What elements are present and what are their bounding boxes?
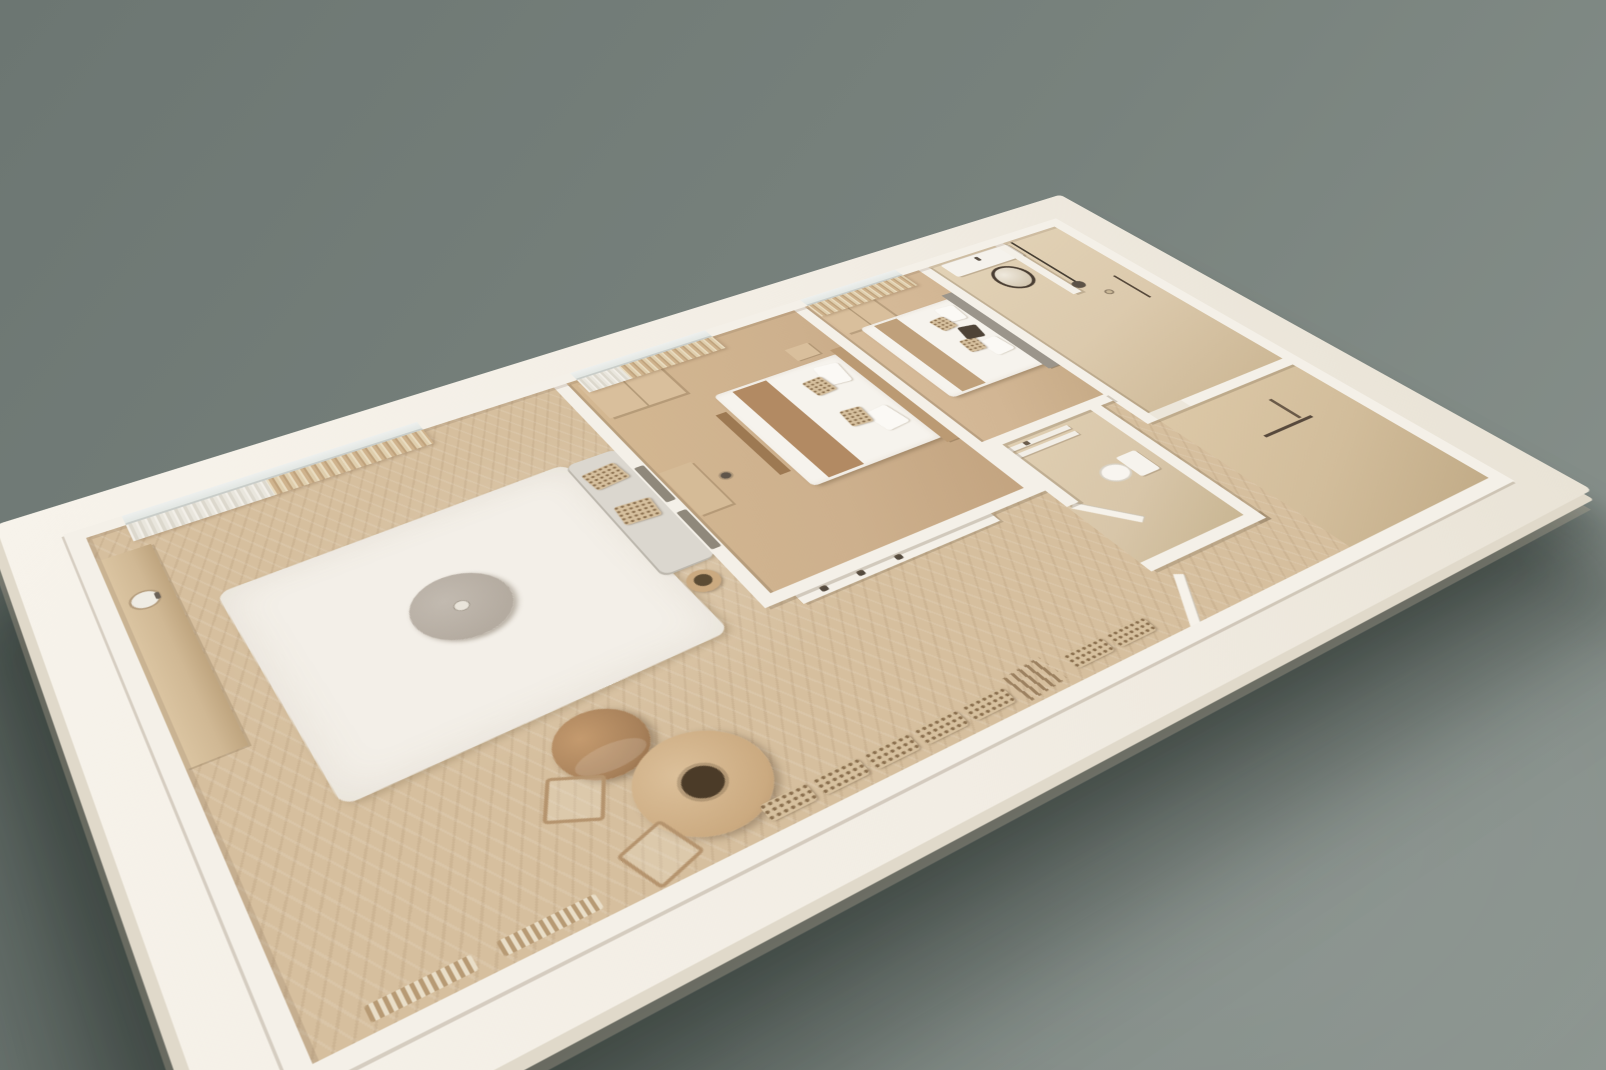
isometric-projection-wrapper [0, 195, 1592, 1070]
scene-background [0, 0, 1606, 1070]
apartment-plan [63, 218, 1514, 1070]
exterior-walls [63, 218, 1514, 1070]
floor-plan-card [0, 195, 1592, 1070]
